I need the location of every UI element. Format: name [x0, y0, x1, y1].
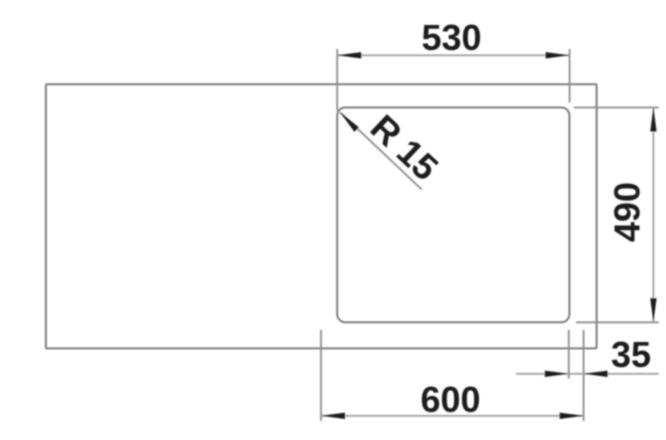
svg-text:R 15: R 15 [363, 106, 447, 188]
svg-text:530: 530 [421, 17, 481, 58]
svg-text:490: 490 [607, 182, 648, 242]
svg-text:600: 600 [420, 379, 480, 420]
svg-text:35: 35 [611, 334, 651, 375]
